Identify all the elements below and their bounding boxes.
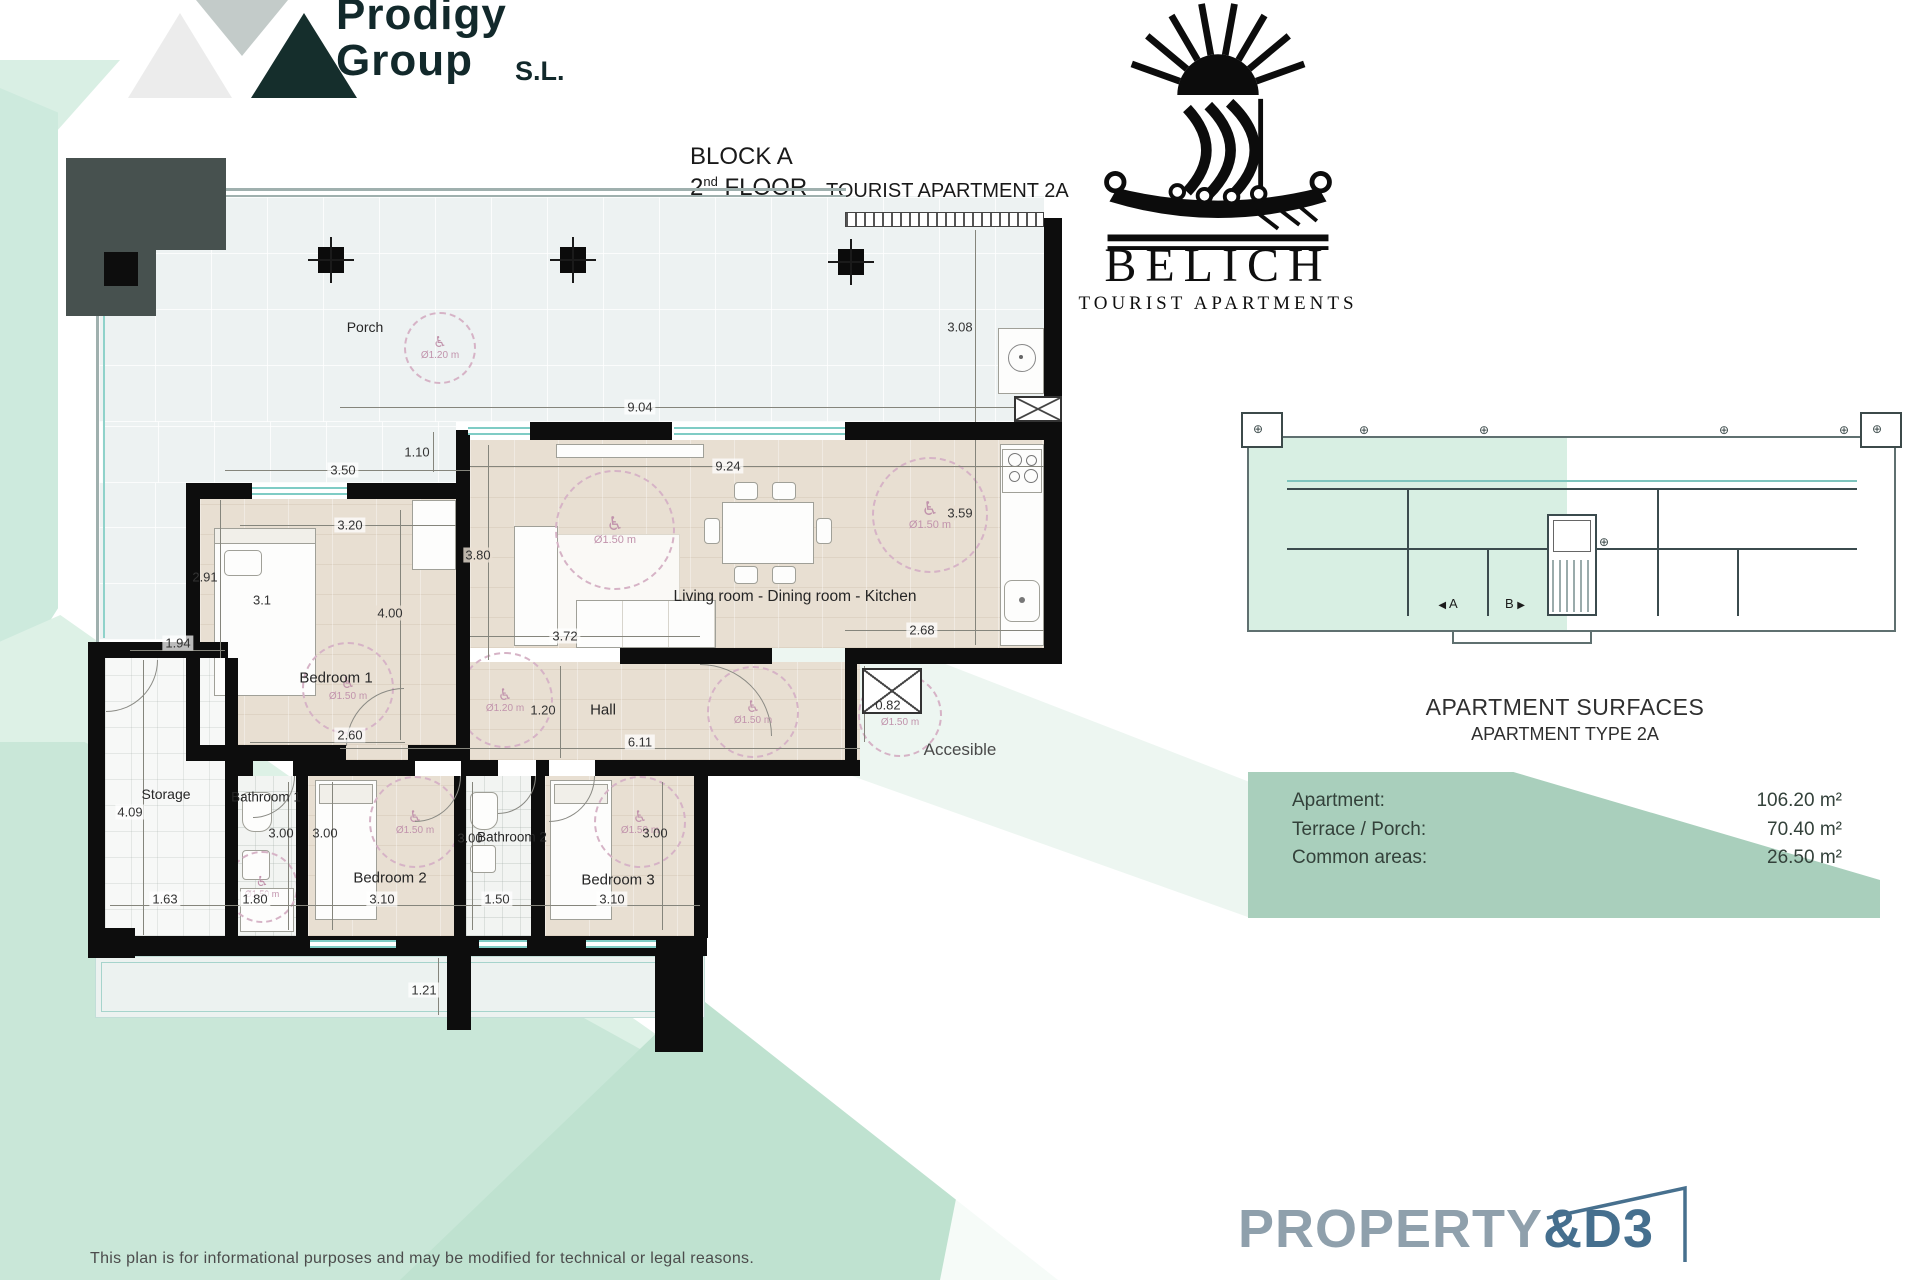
- access-circle-living: ♿ Ø1.50 m: [555, 470, 675, 590]
- bedroom1-wardrobe: [412, 500, 456, 570]
- arrow-left-icon: ◀: [1438, 600, 1446, 611]
- dim-9-24: 9.24: [712, 459, 743, 474]
- dim-line: [845, 630, 1044, 631]
- prodigy-logo-name-line2: Group: [336, 36, 473, 86]
- wall-living-left: [456, 430, 470, 760]
- dim-1-10: 1.10: [404, 445, 429, 460]
- wheelchair-icon: ♿: [633, 809, 647, 825]
- dim-line: [250, 742, 405, 743]
- dim-3-10-bedroom3: 3.10: [596, 892, 627, 907]
- background-wedge-left: [0, 88, 58, 700]
- mini-plan-teal-wall: [1287, 480, 1857, 482]
- dim-3-1: 3.1: [253, 593, 271, 608]
- room-label-bathroom2: Bathroom 2: [477, 830, 547, 845]
- access-circle-porch: ♿ Ø1.20 m: [404, 312, 476, 384]
- porch-floor: [99, 196, 1044, 422]
- room-label-accessible: Accesible: [924, 740, 997, 760]
- mini-plan-unit-b-label: B ▶: [1505, 596, 1525, 611]
- roof-slab: [66, 158, 226, 250]
- wall-hall-bottom-2: [293, 760, 415, 776]
- dim-line: [975, 230, 976, 422]
- access-circle-bedroom3: ♿ Ø1.50 m: [594, 776, 686, 868]
- dim-line: [560, 666, 561, 758]
- stove-burner-1: [1008, 453, 1022, 467]
- mini-plan-unit-a-label: ◀ A: [1438, 596, 1457, 611]
- background-notch-white: [940, 1000, 1060, 1280]
- mini-plan-wall: [1657, 488, 1659, 616]
- room-label-storage: Storage: [141, 786, 190, 802]
- property-d3-main: PROPERTY: [1238, 1199, 1543, 1259]
- dining-chair-5: [704, 518, 720, 544]
- position-marker-icon: ⊕: [1599, 536, 1609, 548]
- dim-3-00-bedroom2: 3.00: [312, 826, 337, 841]
- mini-plan-wall: [1287, 488, 1857, 490]
- access-diameter-label: Ø1.50 m: [329, 692, 367, 702]
- wall-hall-bottom-5: [595, 760, 860, 776]
- dim-line: [433, 432, 434, 472]
- dim-line: [400, 510, 401, 740]
- dim-line: [220, 500, 221, 658]
- porch-floor-left: [99, 483, 186, 640]
- dim-line: [662, 782, 663, 930]
- dim-2-60: 2.60: [334, 728, 365, 743]
- belich-logo-name: BELICH: [1104, 238, 1331, 293]
- position-marker-icon: ⊕: [1719, 424, 1729, 436]
- arrow-right-icon: ▶: [1517, 600, 1525, 611]
- wall-bedroom1-left: [186, 483, 200, 761]
- wall-bath2-bed3: [531, 776, 545, 938]
- dim-9-04: 9.04: [624, 400, 655, 415]
- dim-3-08: 3.08: [947, 320, 972, 335]
- wall-bottom-stub-1: [447, 956, 471, 1030]
- living-window-1: [468, 427, 530, 435]
- wall-bottom-stub-2: [655, 936, 703, 1052]
- access-diameter-label: Ø1.50 m: [594, 535, 636, 546]
- dim-3-00-bedroom3: 3.00: [642, 826, 667, 841]
- wall-bedroom1-top-2: [347, 483, 470, 499]
- wheelchair-icon: ♿: [921, 500, 938, 519]
- access-diameter-label: Ø1.50 m: [909, 520, 951, 531]
- surfaces-row-value: 106.20 m²: [1756, 790, 1842, 812]
- room-label-bedroom2: Bedroom 2: [353, 870, 426, 887]
- unit-a-letter: A: [1449, 596, 1458, 611]
- porch-sink-drain: [1019, 355, 1023, 359]
- plan-title-block: BLOCK A: [690, 143, 793, 171]
- wheelchair-icon: ♿: [433, 335, 446, 350]
- living-window-2: [674, 427, 845, 435]
- access-diameter-label: Ø1.50 m: [396, 826, 434, 836]
- dim-1-20: 1.20: [528, 703, 557, 718]
- access-diameter-label: Ø1.50 m: [881, 718, 919, 728]
- dim-4-00-bedroom1: 4.00: [375, 606, 404, 621]
- position-marker-icon: ⊕: [1839, 424, 1849, 436]
- dim-1-50: 1.50: [481, 892, 512, 907]
- slab-column: [104, 252, 138, 286]
- dining-chair-1: [734, 482, 758, 500]
- dim-line: [975, 440, 976, 645]
- wall-hall-bottom-4: [536, 760, 549, 776]
- belich-ship-logo: [1062, 0, 1374, 250]
- surfaces-row-value: 70.40 m²: [1767, 819, 1842, 841]
- mini-plan-wall: [1287, 548, 1567, 550]
- dim-3-59: 3.59: [945, 506, 974, 521]
- dim-1-63: 1.63: [149, 892, 180, 907]
- wall-storage-left: [88, 642, 105, 938]
- plan-title-apartment: TOURIST APARTMENT 2A: [826, 180, 1069, 203]
- dim-4-09: 4.09: [115, 805, 144, 820]
- porch-column-1: [318, 247, 344, 273]
- dim-3-72: 3.72: [549, 629, 580, 644]
- bathroom2-window: [479, 940, 527, 948]
- wall-entrance-side: [845, 648, 857, 776]
- stove-burner-3: [1009, 471, 1020, 482]
- room-label-hall: Hall: [590, 702, 616, 719]
- room-label-bathroom1: Bathroom 1: [231, 790, 301, 805]
- dim-line: [340, 407, 1044, 408]
- access-circle-hall-left: ♿ Ø1.20 m: [457, 652, 553, 748]
- dining-table: [722, 502, 814, 564]
- surfaces-title: APARTMENT SURFACES: [1426, 694, 1705, 721]
- prodigy-logo-name-line1: Prodigy: [336, 0, 507, 40]
- bed-double-headboard: [214, 528, 316, 544]
- wall-living-top-2: [845, 422, 1044, 440]
- property-d3-roofline: [1545, 1182, 1705, 1264]
- dim-1-80: 1.80: [239, 892, 270, 907]
- bathroom2-sink: [470, 845, 496, 873]
- dining-chair-6: [816, 518, 832, 544]
- access-diameter-label: Ø1.20 m: [486, 704, 524, 714]
- room-label-bedroom1: Bedroom 1: [299, 670, 372, 687]
- mini-plan-entry-stub: [1452, 630, 1592, 644]
- dining-chair-2: [772, 482, 796, 500]
- wheelchair-icon: ♿: [498, 687, 512, 703]
- mini-plan-wall: [1487, 548, 1489, 616]
- bedroom1-window: [252, 487, 347, 495]
- tv-board: [556, 444, 704, 458]
- mini-plan-wall: [1407, 488, 1409, 616]
- position-marker-icon: ⊕: [1253, 423, 1263, 435]
- wall-living-bottom-2: [847, 648, 1044, 664]
- wall-living-top-1: [530, 422, 672, 440]
- room-label-porch: Porch: [347, 319, 384, 335]
- position-marker-icon: ⊕: [1872, 423, 1882, 435]
- porch-shaft-box: [1014, 396, 1062, 422]
- dim-6-11: 6.11: [625, 735, 655, 750]
- dim-3-80: 3.80: [463, 548, 492, 563]
- wall-bed2-bath2: [454, 776, 466, 938]
- porch-column-2: [560, 247, 586, 273]
- access-diameter-label: Ø1.20 m: [421, 351, 459, 361]
- dim-2-91: 2.91: [192, 570, 217, 585]
- bed-single-2-pillow: [319, 784, 373, 804]
- position-marker-icon: ⊕: [1479, 424, 1489, 436]
- wheelchair-icon: ♿: [256, 875, 269, 889]
- mini-plan-lift: [1553, 520, 1591, 552]
- dim-line: [332, 782, 333, 930]
- surfaces-subtitle: APARTMENT TYPE 2A: [1471, 724, 1659, 745]
- dining-chair-3: [734, 566, 758, 584]
- bathroom2-toilet: [470, 792, 498, 830]
- bedroom2-window: [310, 940, 396, 948]
- prodigy-logo-suffix: S.L.: [515, 56, 565, 87]
- dim-3-50: 3.50: [327, 463, 358, 478]
- terrace-inner-line: [101, 962, 699, 1012]
- unit-b-letter: B: [1505, 596, 1514, 611]
- wall-bed3-right: [694, 776, 708, 938]
- dining-chair-4: [772, 566, 796, 584]
- mini-plan-stairs: [1552, 560, 1592, 612]
- dim-3-20: 3.20: [334, 518, 365, 533]
- disclaimer-text: This plan is for informational purposes …: [90, 1250, 754, 1268]
- sofa-horizontal: [576, 600, 716, 648]
- mini-plan-wall: [1577, 548, 1857, 550]
- kitchen-sink-drain: [1019, 597, 1025, 603]
- stove-burner-4: [1024, 469, 1038, 483]
- building-overview-plan: ⊕ ⊕ ⊕ ⊕ ⊕ ⊕ ⊕ ◀ A B ▶: [1247, 418, 1898, 650]
- wheelchair-icon: ♿: [606, 515, 623, 534]
- mini-plan-wall: [1737, 548, 1739, 616]
- dim-2-68: 2.68: [906, 623, 937, 638]
- stove-burner-2: [1026, 455, 1037, 466]
- floor-ordinal: nd: [703, 174, 717, 189]
- dim-0-82: 0.82: [875, 698, 900, 713]
- position-marker-icon: ⊕: [1359, 424, 1369, 436]
- wall-living-bottom-1: [620, 648, 772, 664]
- porch-column-3: [838, 249, 864, 275]
- room-label-bedroom3: Bedroom 3: [581, 872, 654, 889]
- porch-floor-strip: [102, 422, 456, 483]
- room-label-living: Living room - Dining room - Kitchen: [674, 588, 917, 606]
- dim-line: [340, 748, 860, 749]
- surfaces-row-label: Common areas:: [1292, 847, 1427, 869]
- dim-3-10-bedroom2: 3.10: [366, 892, 397, 907]
- dim-1-94: 1.94: [162, 636, 193, 651]
- page: { "branding": { "prodigy": { "line1": "P…: [0, 0, 1920, 1280]
- dim-3-00-bathroom1: 3.00: [268, 826, 293, 841]
- porch-window-hatch: [845, 212, 1044, 227]
- surfaces-row-label: Terrace / Porch:: [1292, 819, 1426, 841]
- wall-bedroom1-bottom-1: [186, 745, 346, 761]
- bed-double-pillow: [224, 550, 262, 576]
- wall-right: [1044, 218, 1062, 664]
- belich-logo-subtitle: TOURIST APARTMENTS: [1078, 293, 1357, 315]
- dim-line: [470, 466, 1044, 467]
- dim-line: [472, 782, 473, 930]
- bedroom3-window: [586, 940, 656, 948]
- dim-line: [470, 636, 700, 637]
- surfaces-row-label: Apartment:: [1292, 790, 1385, 812]
- surfaces-row-value: 26.50 m²: [1767, 847, 1842, 869]
- dim-1-21: 1.21: [408, 983, 439, 998]
- wall-hall-bottom-3: [461, 760, 498, 776]
